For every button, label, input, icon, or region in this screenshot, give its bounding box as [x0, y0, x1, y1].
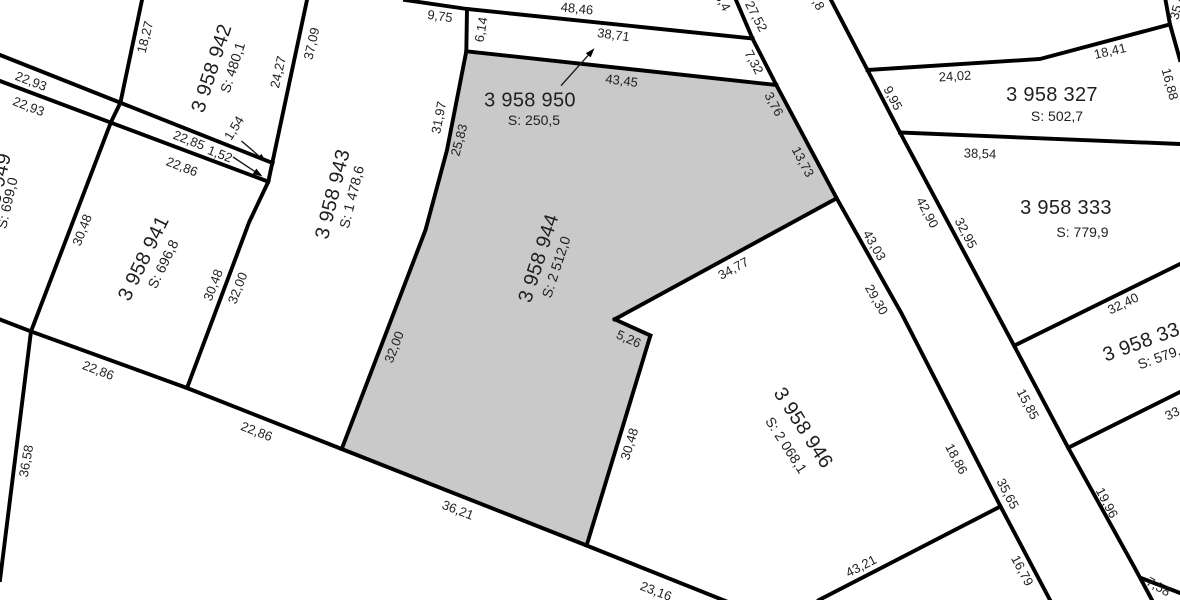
- svg-text:38,54: 38,54: [963, 145, 996, 161]
- svg-text:3 958 333: 3 958 333: [1020, 197, 1112, 219]
- svg-text:3 958 327: 3 958 327: [1006, 84, 1098, 106]
- svg-text:S: 502,7: S: 502,7: [1031, 108, 1083, 124]
- svg-text:S: 779,9: S: 779,9: [1056, 224, 1108, 240]
- svg-text:3 958 950: 3 958 950: [484, 90, 576, 112]
- svg-text:S: 250,5: S: 250,5: [508, 112, 560, 128]
- svg-text:24,02: 24,02: [938, 68, 971, 85]
